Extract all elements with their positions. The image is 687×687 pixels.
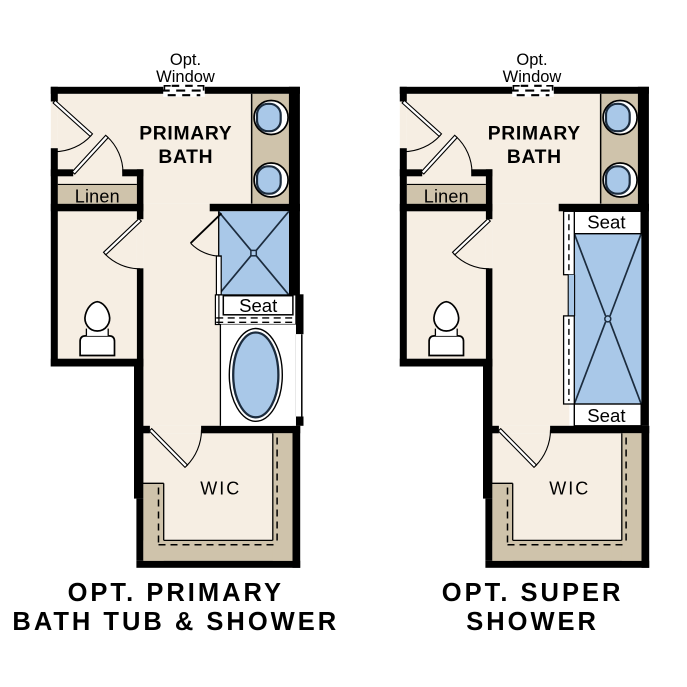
svg-text:Linen: Linen — [75, 186, 120, 206]
svg-text:Seat: Seat — [587, 212, 626, 233]
svg-text:PRIMARY: PRIMARY — [488, 124, 581, 145]
svg-text:Opt.: Opt. — [170, 51, 201, 69]
svg-text:BATH: BATH — [158, 147, 213, 168]
svg-text:BATH TUB & SHOWER: BATH TUB & SHOWER — [12, 608, 339, 636]
svg-text:WIC: WIC — [549, 479, 590, 499]
svg-text:OPT. PRIMARY: OPT. PRIMARY — [68, 579, 284, 607]
svg-text:Window: Window — [503, 68, 562, 86]
svg-text:SHOWER: SHOWER — [466, 608, 599, 636]
svg-text:OPT. SUPER: OPT. SUPER — [442, 579, 624, 607]
svg-text:Window: Window — [156, 68, 215, 86]
svg-text:Opt.: Opt. — [516, 51, 547, 69]
svg-text:Linen: Linen — [424, 186, 469, 206]
svg-text:BATH: BATH — [507, 147, 562, 168]
svg-text:WIC: WIC — [200, 479, 241, 499]
svg-text:PRIMARY: PRIMARY — [139, 124, 232, 145]
svg-text:Seat: Seat — [239, 295, 278, 316]
svg-text:Seat: Seat — [587, 405, 626, 426]
